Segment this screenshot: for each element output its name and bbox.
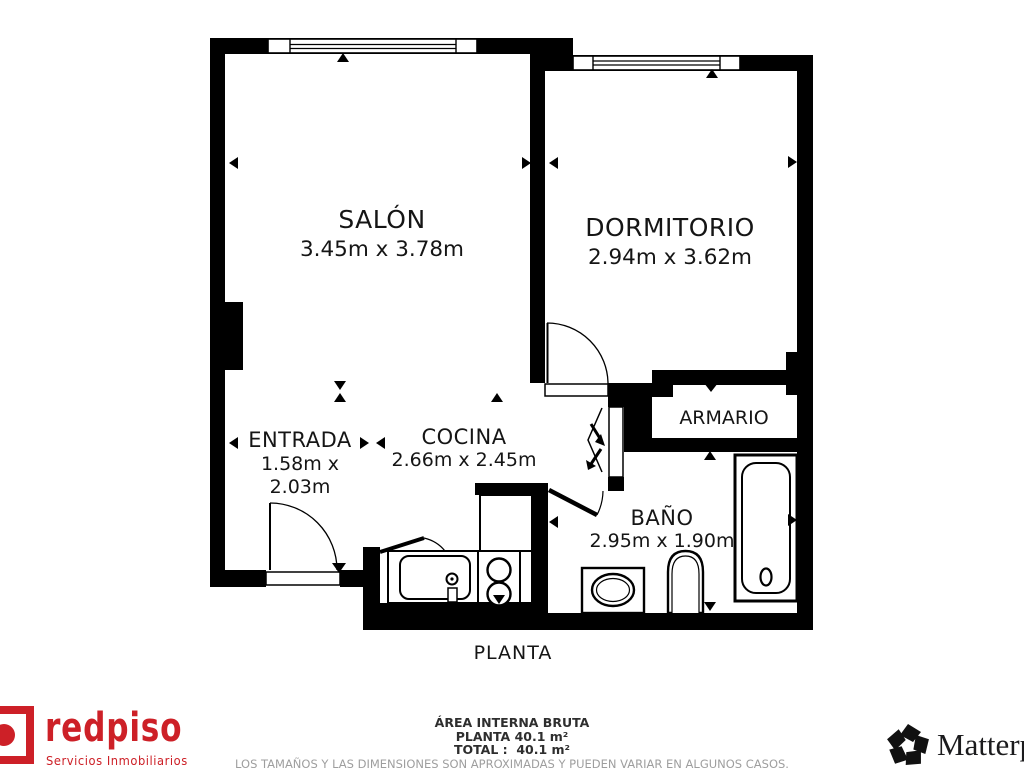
floorplan-drawing: SALÓN 3.45m x 3.78m DORMITORIO 2.94m x 3… [0, 0, 1024, 768]
floorplan-page: SALÓN 3.45m x 3.78m DORMITORIO 2.94m x 3… [0, 0, 1024, 768]
room-label-bano: BAÑO [630, 504, 693, 530]
room-dims-entrada-2: 2.03m [270, 476, 331, 498]
kitchen-appliance [480, 495, 532, 551]
folding-door [586, 407, 623, 477]
dormitorio-window [573, 56, 740, 70]
matterport-pinwheel-icon [886, 722, 930, 768]
footer: redpiso Servicios Inmobiliarios ÁREA INT… [0, 690, 1024, 768]
room-dims-bano: 2.95m x 1.90m [590, 530, 735, 552]
kitchen-sink [400, 556, 470, 602]
room-label-dormitorio: DORMITORIO [585, 213, 755, 242]
room-label-armario: ARMARIO [679, 407, 768, 429]
room-label-entrada: ENTRADA [248, 428, 352, 452]
room-label-salon: SALÓN [338, 204, 425, 234]
plan-title: PLANTA [474, 642, 553, 664]
dormitorio-door [545, 323, 608, 396]
room-dims-salon: 3.45m x 3.78m [300, 237, 464, 262]
room-dims-dormitorio: 2.94m x 3.62m [588, 245, 752, 270]
bathroom-sink [582, 568, 644, 613]
room-label-cocina: COCINA [421, 425, 506, 449]
area-line-1: ÁREA INTERNA BRUTA [0, 716, 1024, 730]
bathroom-door [549, 490, 603, 515]
area-disclaimer: LOS TAMAÑOS Y LAS DIMENSIONES SON APROXI… [0, 758, 1024, 768]
area-line-3: TOTAL : 40.1 m² [0, 743, 1024, 757]
kitchen-door [380, 538, 445, 552]
entrance-door [266, 503, 346, 587]
room-dims-cocina: 2.66m x 2.45m [392, 449, 537, 471]
matterport-wordmark: Matterport [937, 727, 1024, 763]
matterport-logo: Matterport [886, 722, 1024, 768]
area-line-2: PLANTA 40.1 m² [0, 730, 1024, 744]
salon-window [268, 39, 477, 53]
toilet [668, 551, 703, 613]
bathtub [735, 455, 797, 601]
room-dims-entrada-1: 1.58m x [261, 453, 339, 475]
area-summary: ÁREA INTERNA BRUTA PLANTA 40.1 m² TOTAL … [0, 716, 1024, 768]
